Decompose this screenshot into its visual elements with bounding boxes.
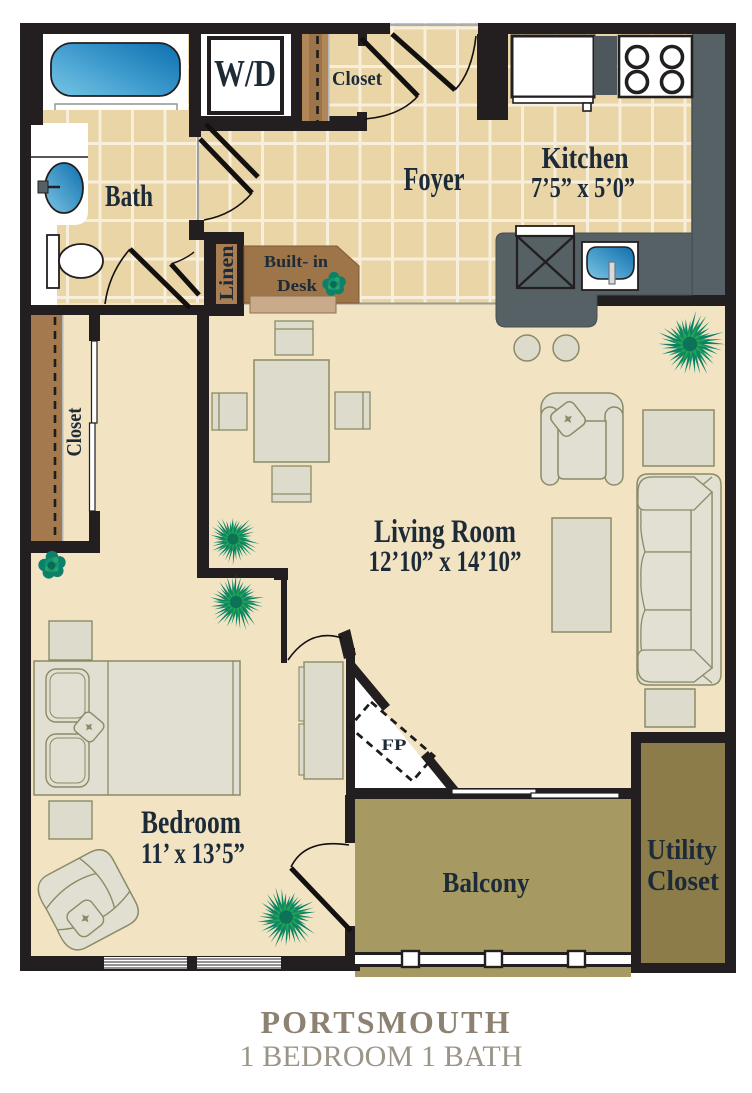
svg-text:Balcony: Balcony: [443, 867, 530, 899]
svg-text:Utility: Utility: [647, 835, 717, 866]
svg-text:Desk: Desk: [277, 276, 318, 295]
svg-text:Bath: Bath: [105, 178, 153, 213]
svg-text:12’10” x 14’10”: 12’10” x 14’10”: [369, 545, 522, 578]
svg-text:Built- in: Built- in: [264, 252, 329, 271]
svg-text:Foyer: Foyer: [404, 161, 465, 198]
svg-text:11’ x 13’5”: 11’ x 13’5”: [141, 837, 245, 870]
svg-text:7’5” x 5’0”: 7’5” x 5’0”: [531, 172, 635, 204]
svg-text:Closet: Closet: [62, 408, 86, 457]
svg-text:W/D: W/D: [214, 53, 276, 95]
svg-text:Closet: Closet: [332, 68, 382, 90]
svg-text:PORTSMOUTH: PORTSMOUTH: [261, 1004, 510, 1040]
svg-text:Closet: Closet: [647, 866, 720, 897]
svg-text:Kitchen: Kitchen: [542, 140, 629, 175]
svg-text:Linen: Linen: [216, 246, 238, 301]
svg-text:FP: FP: [382, 737, 407, 754]
svg-text:1 BEDROOM 1 BATH: 1 BEDROOM 1 BATH: [240, 1040, 523, 1073]
svg-text:Bedroom: Bedroom: [141, 805, 241, 841]
